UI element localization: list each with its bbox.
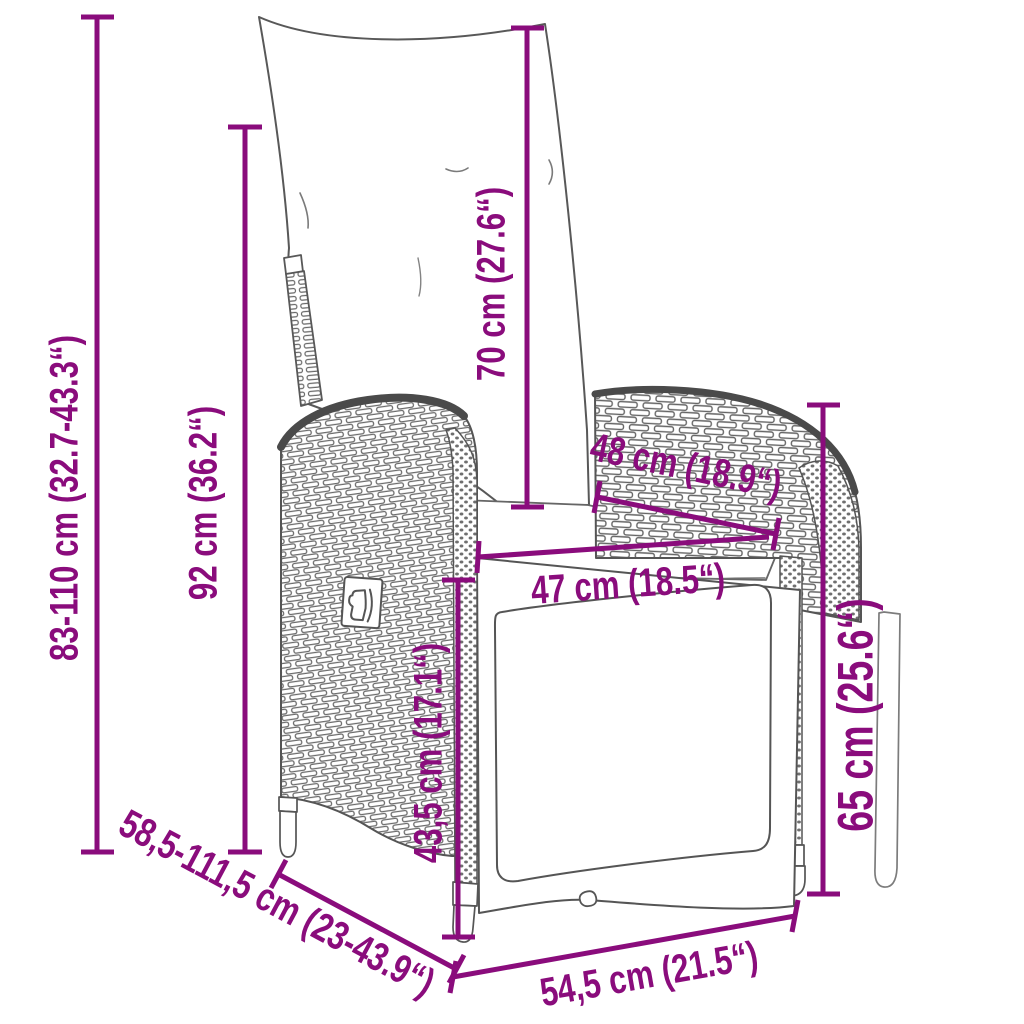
dim-label-armrest-height: 65 cm (25.6“) xyxy=(828,598,883,831)
product-dimension-diagram: 83-110 cm (32.7-43.3“) 92 cm (36.2“) 70 … xyxy=(0,0,1024,1024)
dim-label-seat-height: 43,5 cm (17.1“) xyxy=(406,643,451,863)
chair-drawing xyxy=(259,17,900,942)
dim-label-backrest-height: 92 cm (36.2“) xyxy=(181,406,226,600)
rear-left-leg xyxy=(280,811,296,857)
footrest-cushion xyxy=(495,585,771,881)
dim-label-overall-height: 83-110 cm (32.7-43.3“) xyxy=(42,335,87,661)
dim-label-back-cushion-height: 70 cm (27.6“) xyxy=(469,187,514,381)
footrest-latch xyxy=(580,891,597,906)
recline-handle xyxy=(341,577,382,629)
dim-label-base-width: 54,5 cm (21.5“) xyxy=(537,933,762,1016)
dim-backrest-height xyxy=(228,127,262,852)
chair-dimension-drawing: 83-110 cm (32.7-43.3“) 92 cm (36.2“) 70 … xyxy=(0,0,1024,1024)
